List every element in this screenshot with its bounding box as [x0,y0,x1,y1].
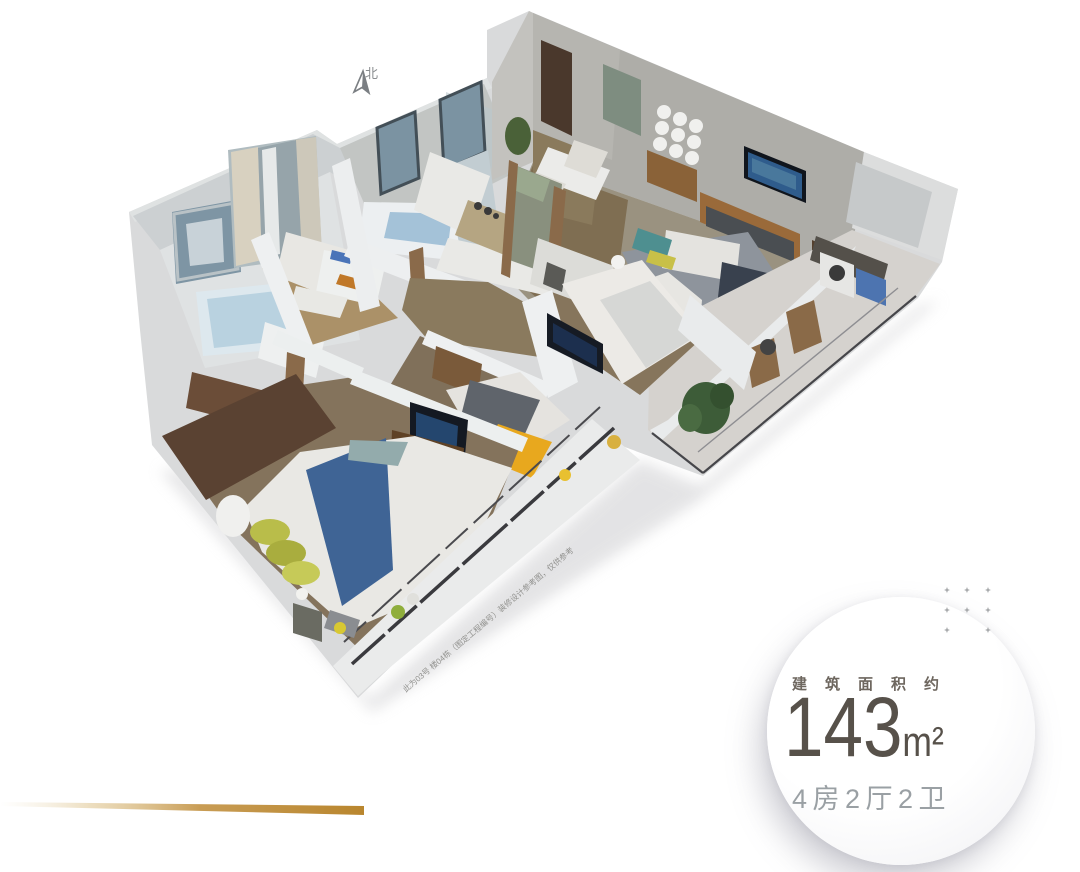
svg-text:北: 北 [365,66,378,81]
